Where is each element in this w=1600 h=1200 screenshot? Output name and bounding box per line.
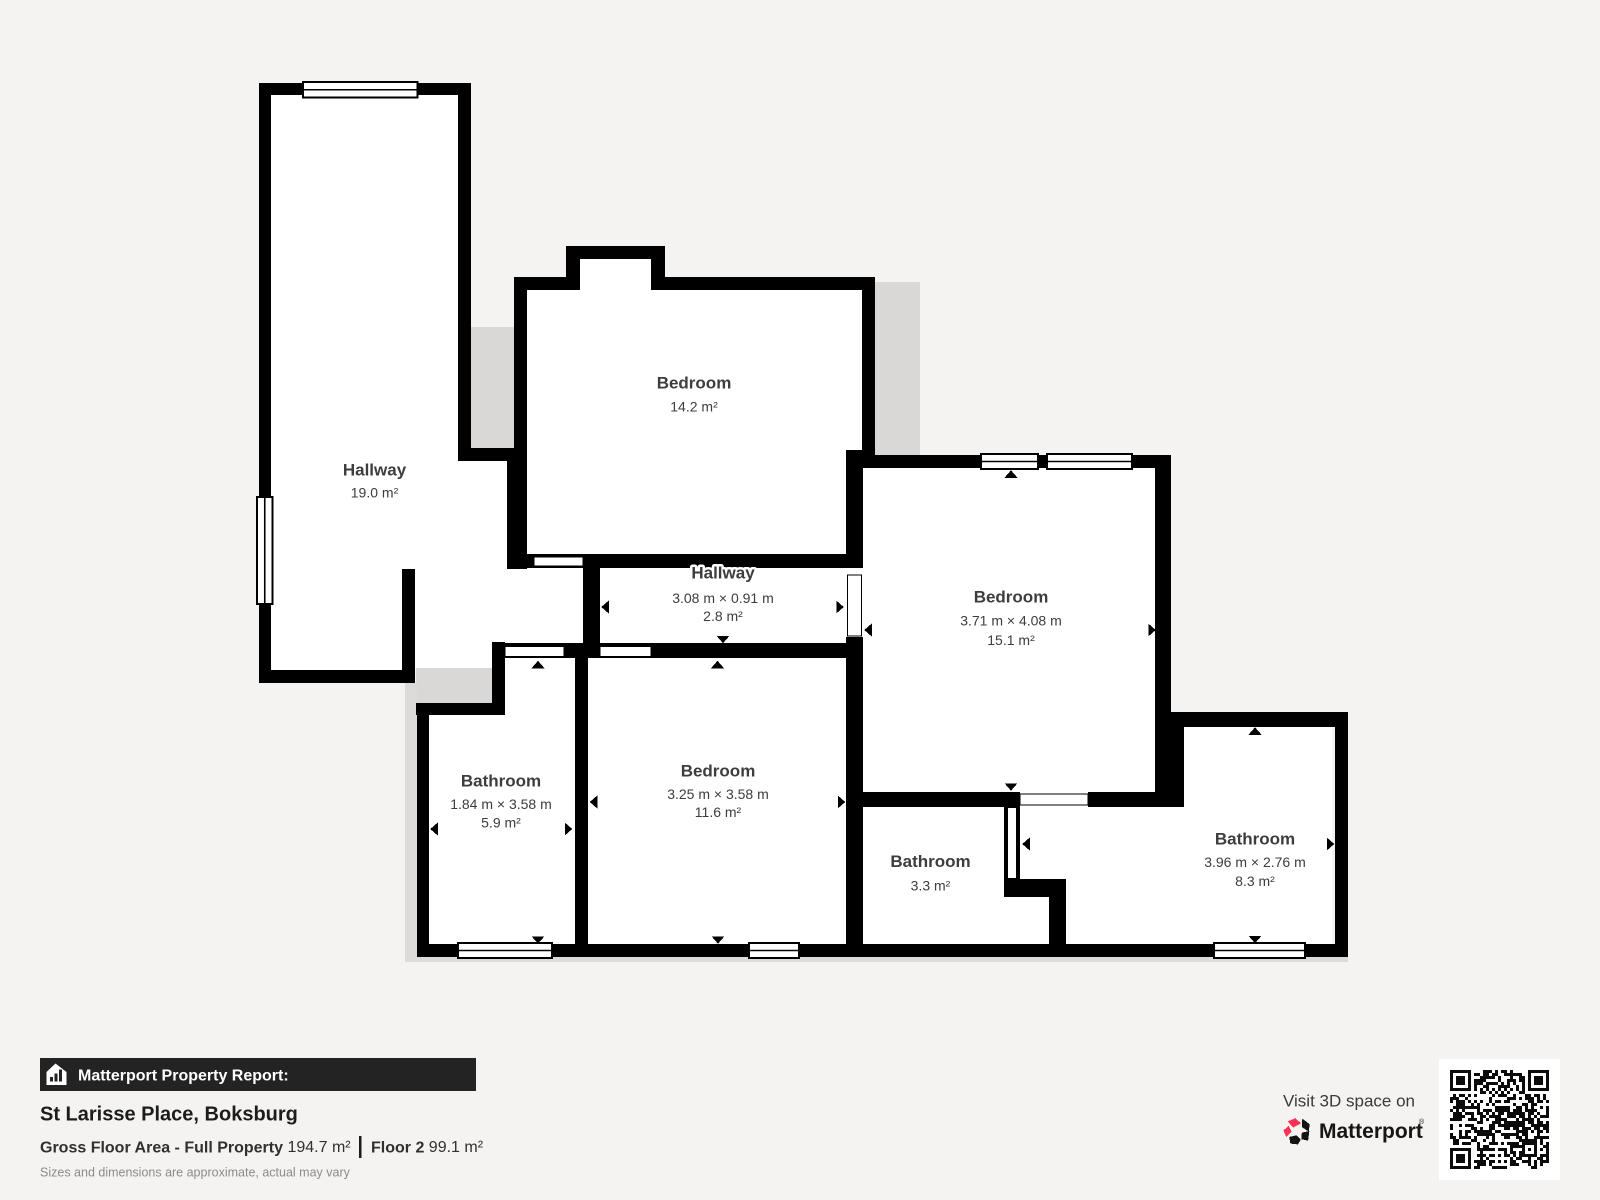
svg-text:®: ® xyxy=(1419,1118,1425,1126)
svg-text:15.1 m²: 15.1 m² xyxy=(987,632,1035,648)
svg-text:Bedroom: Bedroom xyxy=(681,762,756,781)
svg-text:Bedroom: Bedroom xyxy=(657,374,732,393)
svg-text:3.08 m × 0.91 m: 3.08 m × 0.91 m xyxy=(672,590,774,606)
svg-text:Sizes and dimensions are appro: Sizes and dimensions are approximate, ac… xyxy=(40,1166,351,1180)
svg-text:19.0 m²: 19.0 m² xyxy=(351,485,399,501)
svg-text:Bathroom: Bathroom xyxy=(890,852,970,871)
svg-text:Hallway: Hallway xyxy=(691,564,755,583)
svg-text:Bedroom: Bedroom xyxy=(974,588,1049,607)
svg-text:Bathroom: Bathroom xyxy=(461,772,541,791)
svg-text:Floor 2 99.1 m²: Floor 2 99.1 m² xyxy=(371,1139,484,1156)
svg-text:3.3 m²: 3.3 m² xyxy=(911,878,951,894)
svg-text:Bathroom: Bathroom xyxy=(1215,830,1295,849)
svg-text:3.25 m × 3.58 m: 3.25 m × 3.58 m xyxy=(667,786,769,802)
svg-text:3.71 m × 4.08 m: 3.71 m × 4.08 m xyxy=(960,613,1062,629)
svg-text:St Larisse Place, Boksburg: St Larisse Place, Boksburg xyxy=(40,1104,298,1126)
svg-text:5.9 m²: 5.9 m² xyxy=(481,815,521,831)
svg-text:8.3 m²: 8.3 m² xyxy=(1235,873,1275,889)
svg-text:2.8 m²: 2.8 m² xyxy=(703,608,743,624)
svg-text:Gross Floor Area - Full Proper: Gross Floor Area - Full Property 194.7 m… xyxy=(40,1139,351,1156)
svg-text:Visit 3D space on: Visit 3D space on xyxy=(1283,1092,1415,1111)
svg-text:3.96 m × 2.76 m: 3.96 m × 2.76 m xyxy=(1204,854,1306,870)
svg-text:1.84 m × 3.58 m: 1.84 m × 3.58 m xyxy=(450,796,552,812)
svg-text:Matterport Property Report:: Matterport Property Report: xyxy=(78,1068,289,1085)
svg-text:11.6 m²: 11.6 m² xyxy=(695,804,742,820)
svg-text:Matterport: Matterport xyxy=(1319,1120,1423,1143)
svg-text:Hallway: Hallway xyxy=(343,461,407,480)
svg-text:14.2 m²: 14.2 m² xyxy=(670,399,718,415)
